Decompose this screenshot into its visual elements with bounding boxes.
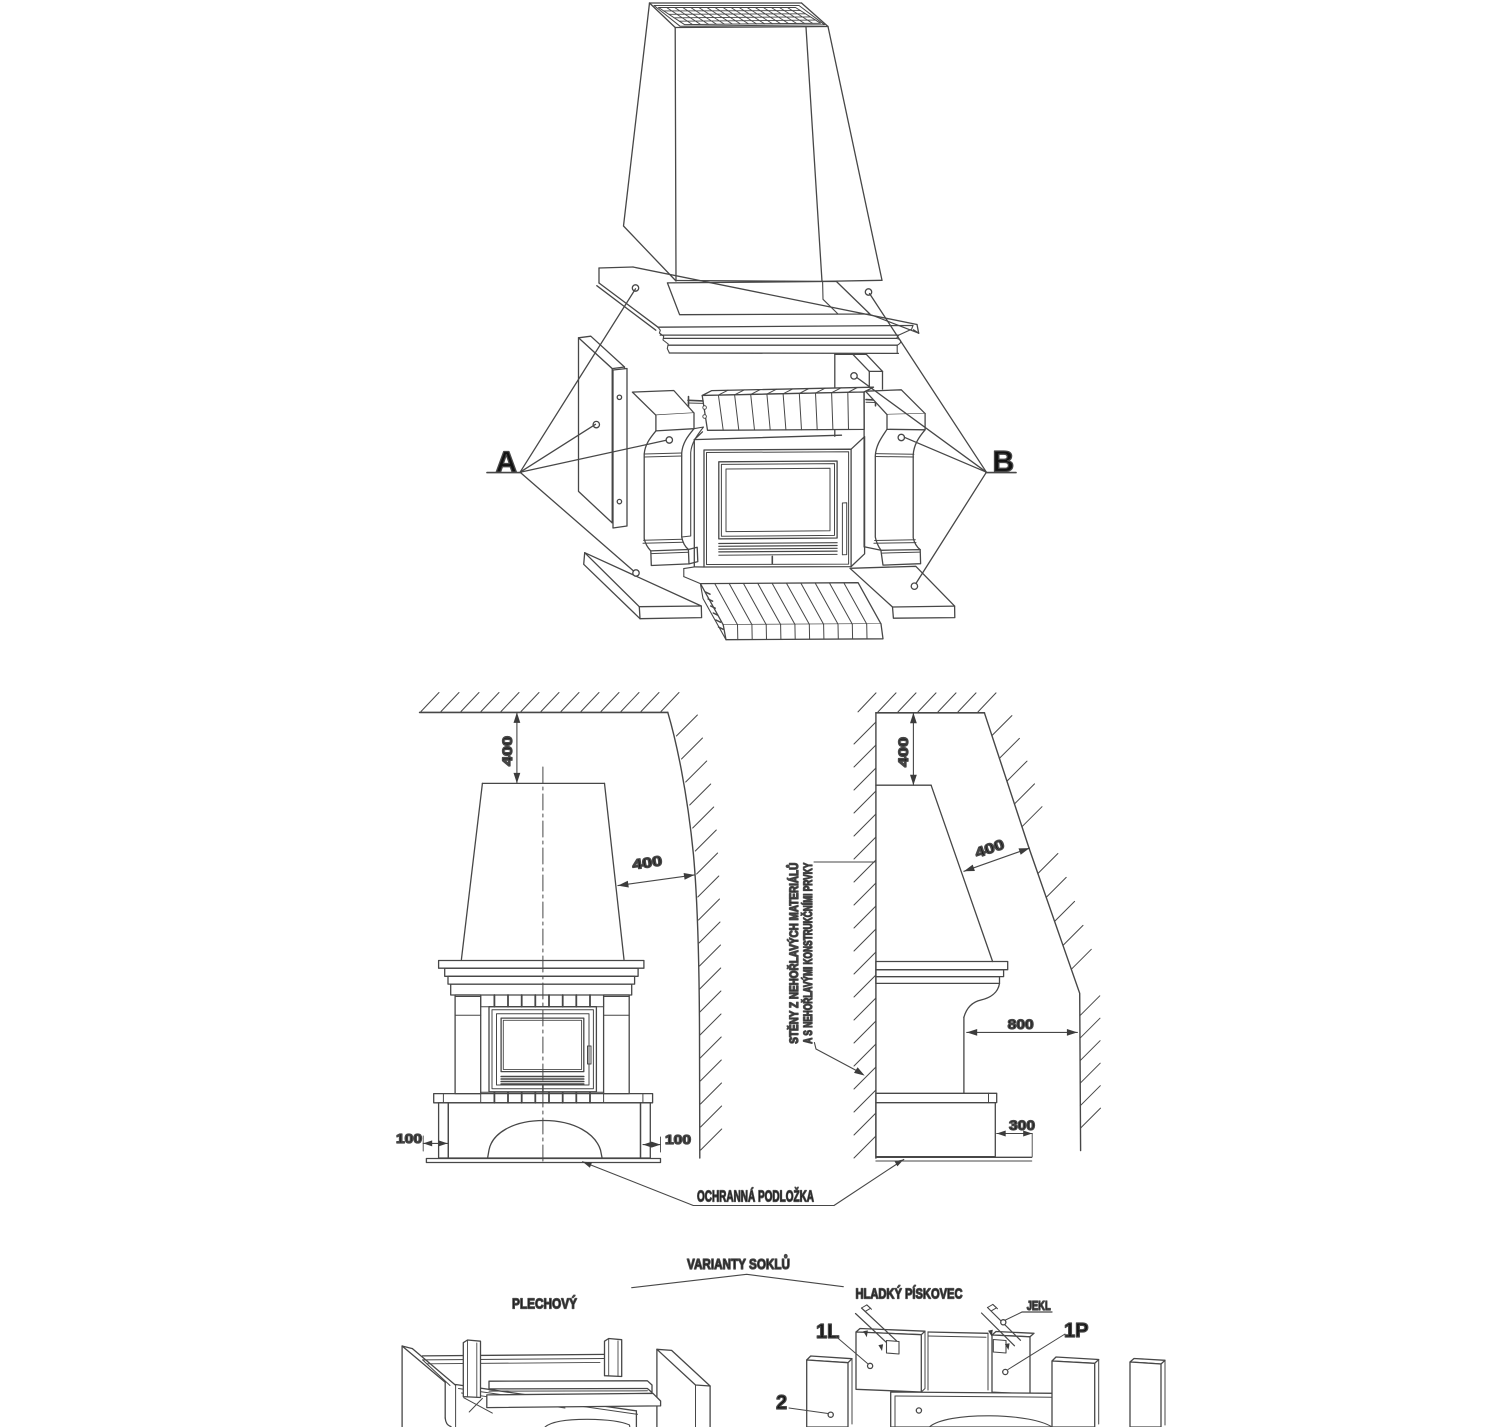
svg-text:300: 300 (1009, 1117, 1035, 1133)
svg-text:JEKL: JEKL (1027, 1298, 1051, 1313)
svg-text:OCHRANNÁ PODLOŽKA: OCHRANNÁ PODLOŽKA (697, 1187, 814, 1206)
svg-text:PLECHOVÝ: PLECHOVÝ (512, 1295, 577, 1313)
svg-text:100: 100 (396, 1131, 422, 1146)
svg-text:VARIANTY SOKLŮ: VARIANTY SOKLŮ (687, 1254, 790, 1273)
svg-text:STĚNY Z NEHOŘLAVÝCH MATERIÁLŮ: STĚNY Z NEHOŘLAVÝCH MATERIÁLŮ (785, 863, 801, 1044)
svg-text:A S NEHOŘLAVÝMI KONSTRUKČNÍMI: A S NEHOŘLAVÝMI KONSTRUKČNÍMI PRVKY (800, 863, 815, 1044)
svg-text:A: A (496, 446, 518, 479)
svg-text:400: 400 (895, 737, 911, 767)
svg-text:100: 100 (665, 1132, 691, 1147)
svg-text:800: 800 (1008, 1016, 1034, 1032)
svg-text:2: 2 (776, 1392, 787, 1414)
svg-text:HLADKÝ PÍSKOVEC: HLADKÝ PÍSKOVEC (856, 1285, 963, 1303)
svg-text:400: 400 (499, 736, 515, 766)
svg-text:1L: 1L (816, 1321, 839, 1343)
svg-text:1P: 1P (1064, 1320, 1088, 1342)
svg-text:B: B (993, 446, 1015, 479)
